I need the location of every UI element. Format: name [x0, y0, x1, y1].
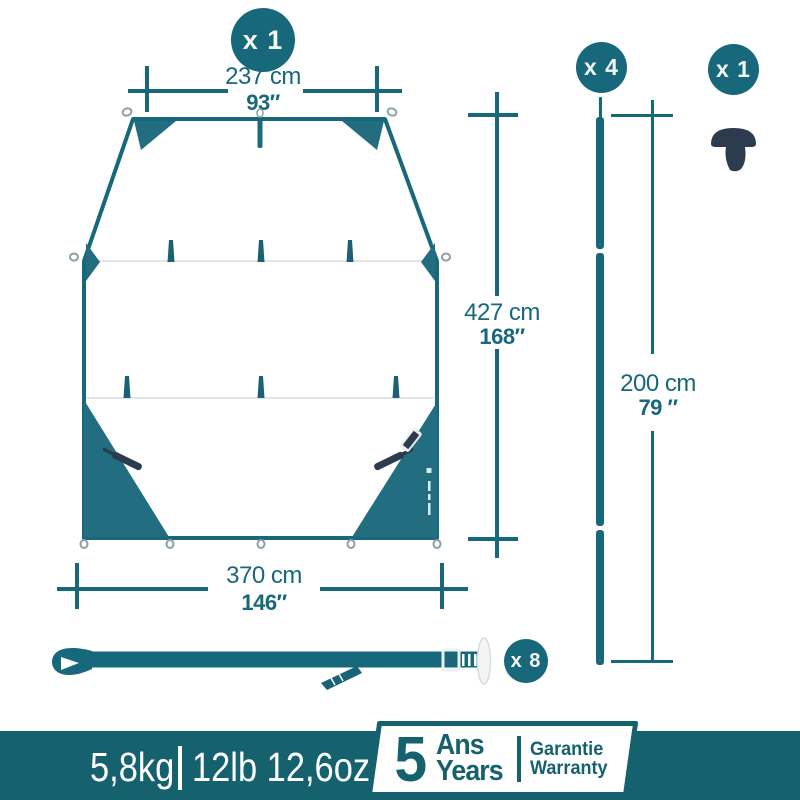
weight-imperial-label: 12lb 12,6oz: [192, 744, 370, 791]
attachment-loop-icon: [387, 107, 398, 117]
attachment-loop-icon: [70, 254, 78, 261]
tension-strap: [52, 638, 491, 690]
strap-body: [80, 652, 478, 668]
warranty-divider: [517, 736, 522, 782]
tarp-center-strap: [258, 119, 263, 148]
warranty-word-en: Years: [436, 759, 503, 785]
strap-slot: [462, 654, 465, 666]
attachment-loop-icon: [167, 540, 174, 548]
warranty-badge: 5 Ans Years Garantie Warranty: [367, 721, 639, 797]
pole-cap-icon: [711, 128, 756, 171]
tarp-outline: [84, 119, 437, 538]
footer-divider: [178, 746, 182, 790]
attachment-loop-icon: [258, 540, 265, 548]
attachment-loop-icon: [257, 109, 263, 117]
attachment-loop-icon: [348, 540, 355, 548]
strap-slot: [468, 654, 471, 666]
attachment-loop-icon: [81, 540, 88, 548]
warranty-years-number: 5: [394, 732, 425, 786]
weight-metric-label: 5,8kg: [90, 744, 174, 791]
diagram-graphics: [0, 0, 800, 800]
attachment-loop-icon: [442, 254, 450, 261]
strap-slot: [474, 654, 477, 666]
attachment-loop-icon: [434, 540, 441, 548]
attachment-loop-icon: [122, 107, 133, 117]
strap-end-disc: [478, 638, 491, 684]
warranty-label-fr: Garantie: [530, 740, 608, 759]
product-dimensions-diagram: x 1 x 4 x 1 x 8 237 cm 93″ 370 cm 146″ 4…: [0, 0, 800, 800]
warranty-badge-content: 5 Ans Years Garantie Warranty: [377, 726, 628, 792]
warranty-label-en: Warranty: [530, 759, 608, 778]
